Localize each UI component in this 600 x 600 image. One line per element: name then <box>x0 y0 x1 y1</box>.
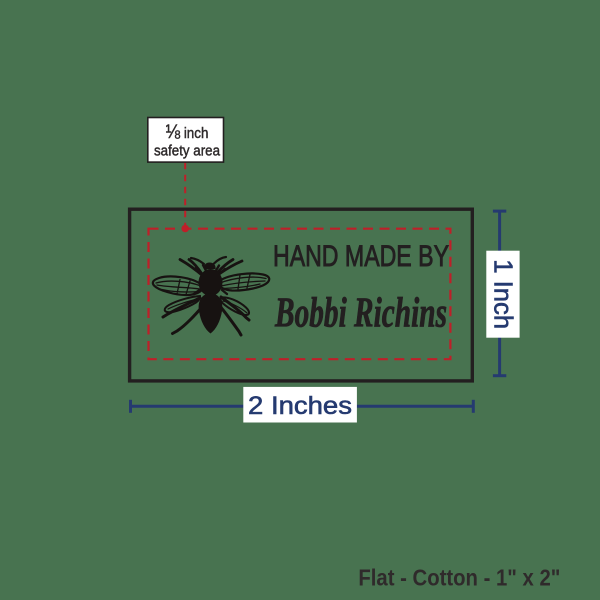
svg-text:HAND MADE BY: HAND MADE BY <box>273 240 449 273</box>
svg-text:1 Inch: 1 Inch <box>489 259 519 329</box>
svg-text:safety area: safety area <box>154 142 221 159</box>
svg-text:Bobbi Richins: Bobbi Richins <box>274 291 447 337</box>
svg-text:⅛ inch: ⅛ inch <box>166 121 209 143</box>
svg-text:2 Inches: 2 Inches <box>248 392 352 420</box>
svg-text:Flat - Cotton - 1" x 2": Flat - Cotton - 1" x 2" <box>358 565 560 591</box>
